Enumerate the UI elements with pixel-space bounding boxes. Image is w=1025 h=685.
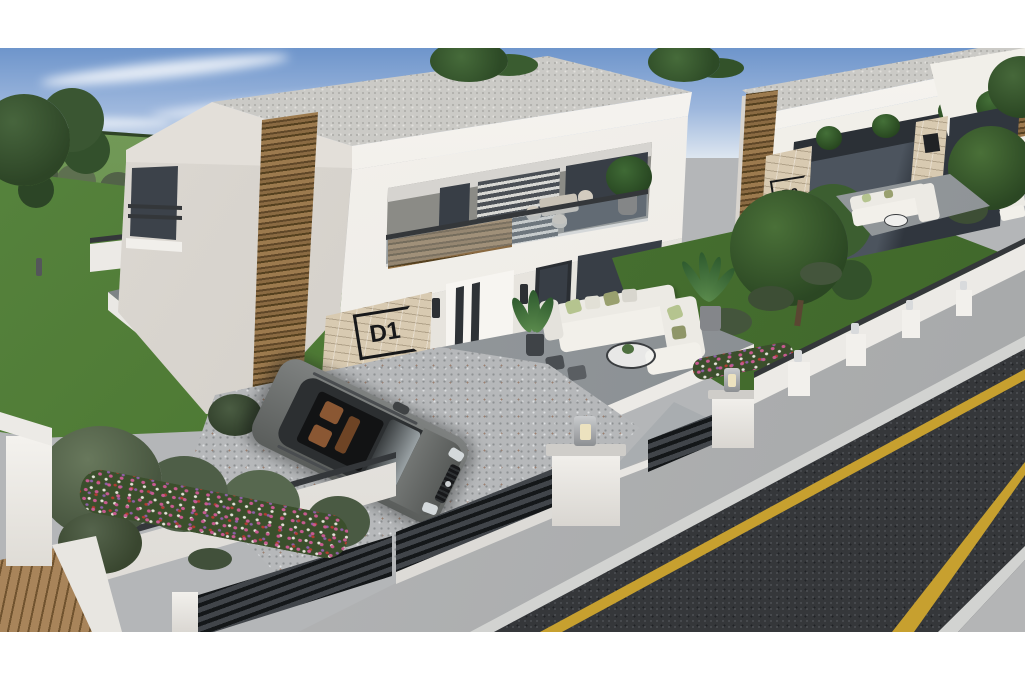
- wall-sconce: [432, 298, 440, 318]
- lamp-pillar-light: [574, 416, 596, 446]
- wall-pillar: [6, 436, 52, 566]
- sofa-pillow: [584, 295, 600, 309]
- lamp-glow: [580, 424, 591, 441]
- fence-pillar: [788, 362, 810, 396]
- villa-d2-coffee-table: [884, 214, 908, 227]
- villa-d1-plaque-label: D1: [368, 317, 403, 349]
- plant-pot: [700, 306, 721, 331]
- lamp-pillar-light: [960, 281, 967, 290]
- villa-d2-balcony-plant: [872, 114, 900, 138]
- lamp-pillar-light: [906, 300, 913, 310]
- hedge-bush: [748, 286, 794, 311]
- fence-pillar: [552, 452, 620, 526]
- sofa-pillow: [622, 288, 638, 302]
- villa-d1-plaque: D1: [353, 306, 417, 361]
- plant-pot: [526, 334, 544, 356]
- letterbox-bottom: [0, 632, 1025, 685]
- fence-pillar: [902, 310, 920, 338]
- fence-pillar: [846, 334, 866, 366]
- lamp-pillar-light: [851, 323, 859, 334]
- sofa-pillow: [671, 325, 687, 340]
- villa-d3-plaque: [923, 133, 940, 153]
- lamp-pillar-light: [724, 368, 740, 392]
- fence-pillar: [712, 396, 754, 448]
- tree: [730, 190, 848, 306]
- sofa-pillow: [883, 189, 893, 198]
- fence-pillar: [956, 290, 972, 316]
- fence-post: [172, 592, 198, 634]
- wall-sconce: [520, 284, 528, 304]
- garden-lamp-bollard: [36, 258, 42, 276]
- hedge-bush: [800, 262, 842, 285]
- render-area: D1 D2: [0, 0, 1025, 685]
- villa-d2-balcony-plant: [816, 126, 842, 150]
- letterbox-top: [0, 0, 1025, 48]
- lamp-glow: [728, 374, 736, 387]
- tree: [648, 42, 720, 82]
- table-plant: [622, 344, 634, 354]
- lamp-pillar-light: [794, 350, 802, 362]
